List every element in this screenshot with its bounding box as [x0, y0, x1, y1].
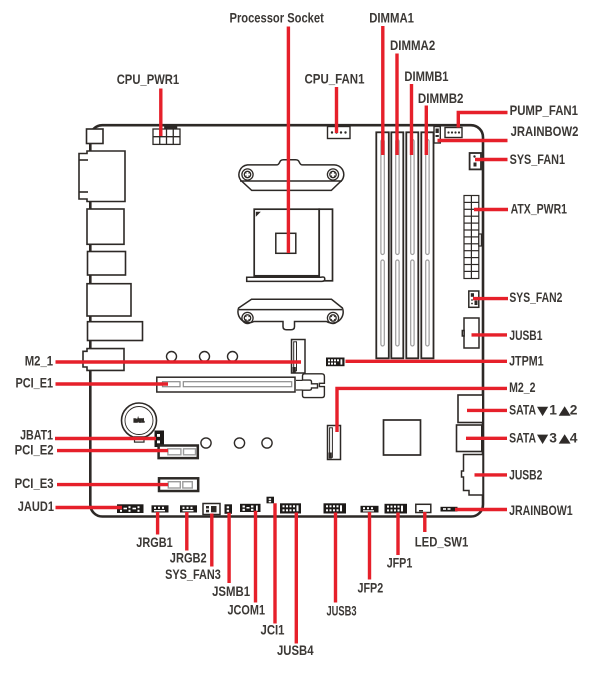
svg-text:SATA: SATA	[509, 431, 536, 446]
svg-text:DIMMA2: DIMMA2	[390, 38, 435, 53]
svg-text:3: 3	[549, 431, 557, 446]
svg-text:JRGB1: JRGB1	[136, 535, 173, 550]
svg-text:JUSB1: JUSB1	[509, 328, 542, 343]
svg-text:SYS_FAN3: SYS_FAN3	[165, 567, 221, 582]
svg-text:JRGB2: JRGB2	[170, 551, 207, 566]
svg-text:PCI_E1: PCI_E1	[16, 376, 54, 391]
svg-text:JFP1: JFP1	[387, 556, 413, 571]
svg-text:Processor Socket: Processor Socket	[230, 11, 325, 26]
svg-text:JFP2: JFP2	[358, 581, 384, 596]
svg-text:JRAINBOW2: JRAINBOW2	[511, 124, 579, 139]
svg-text:JRAINBOW1: JRAINBOW1	[509, 503, 573, 518]
svg-text:JCOM1: JCOM1	[228, 603, 266, 618]
svg-text:JSMB1: JSMB1	[212, 584, 250, 599]
svg-text:JAUD1: JAUD1	[18, 499, 55, 514]
svg-text:PCI_E2: PCI_E2	[15, 442, 54, 457]
svg-text:BAT1: BAT1	[134, 418, 145, 423]
svg-text:DIMMB1: DIMMB1	[404, 69, 448, 84]
svg-text:SATA: SATA	[509, 403, 536, 418]
svg-text:SYS_FAN1: SYS_FAN1	[510, 152, 566, 167]
svg-text:2: 2	[570, 403, 578, 418]
svg-text:PCI_E3: PCI_E3	[15, 476, 54, 491]
svg-text:DIMMA1: DIMMA1	[369, 11, 414, 26]
svg-text:JBAT1: JBAT1	[20, 428, 53, 443]
svg-text:JUSB2: JUSB2	[509, 467, 543, 482]
svg-text:M2_2: M2_2	[509, 380, 536, 395]
svg-text:SYS_FAN2: SYS_FAN2	[509, 290, 562, 305]
svg-text:4: 4	[570, 431, 578, 446]
svg-text:JUSB3: JUSB3	[327, 604, 357, 619]
svg-text:LED_SW1: LED_SW1	[415, 535, 469, 550]
svg-text:M2_1: M2_1	[25, 354, 54, 369]
svg-text:CPU_FAN1: CPU_FAN1	[305, 72, 365, 87]
svg-text:JCI1: JCI1	[261, 623, 285, 638]
svg-text:PUMP_FAN1: PUMP_FAN1	[510, 103, 579, 118]
svg-text:JUSB4: JUSB4	[277, 643, 314, 658]
svg-text:DIMMB2: DIMMB2	[418, 91, 464, 106]
svg-text:ATX_PWR1: ATX_PWR1	[511, 202, 568, 217]
svg-text:CPU_PWR1: CPU_PWR1	[117, 72, 180, 87]
svg-text:JTPM1: JTPM1	[509, 354, 544, 369]
svg-text:1: 1	[549, 403, 557, 418]
